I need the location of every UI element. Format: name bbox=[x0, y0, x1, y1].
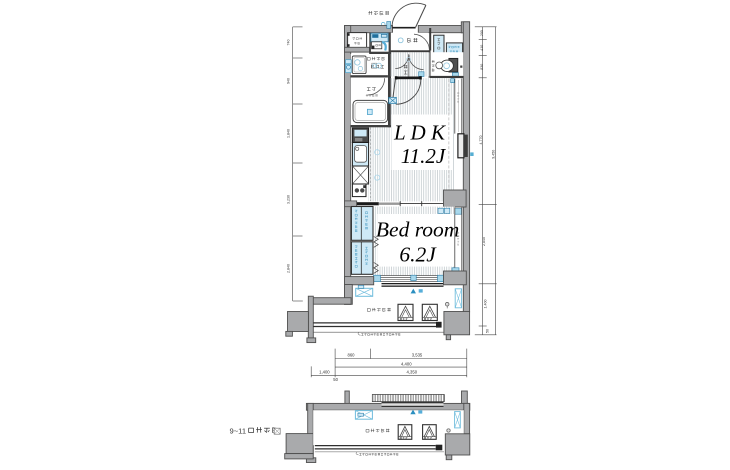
svg-text:2,840: 2,840 bbox=[482, 237, 486, 246]
svg-text:50: 50 bbox=[486, 329, 490, 333]
svg-text:4,350: 4,350 bbox=[407, 370, 418, 375]
svg-text:1,400: 1,400 bbox=[484, 300, 488, 309]
svg-text:860: 860 bbox=[348, 353, 356, 358]
svg-text:740: 740 bbox=[287, 40, 291, 46]
svg-text:830: 830 bbox=[480, 64, 484, 70]
svg-text:1,400: 1,400 bbox=[319, 370, 330, 375]
svg-text:6.2J: 6.2J bbox=[399, 242, 437, 266]
svg-text:3,230: 3,230 bbox=[287, 195, 291, 204]
svg-text:4,400: 4,400 bbox=[401, 361, 412, 366]
svg-text:410: 410 bbox=[480, 45, 484, 51]
svg-text:11.2J: 11.2J bbox=[401, 144, 447, 168]
svg-text:4,770: 4,770 bbox=[479, 136, 483, 145]
svg-text:1,840: 1,840 bbox=[287, 129, 291, 138]
svg-text:3,535: 3,535 bbox=[412, 353, 423, 358]
svg-text:9~11: 9~11 bbox=[230, 427, 247, 436]
svg-text:2,840: 2,840 bbox=[287, 264, 291, 273]
svg-text:Bed room: Bed room bbox=[376, 217, 459, 241]
svg-text:50: 50 bbox=[333, 377, 338, 382]
svg-text:940: 940 bbox=[287, 78, 291, 84]
svg-text:9,450: 9,450 bbox=[492, 150, 496, 159]
svg-text:L D K: L D K bbox=[393, 121, 446, 145]
svg-text:200: 200 bbox=[480, 30, 484, 36]
